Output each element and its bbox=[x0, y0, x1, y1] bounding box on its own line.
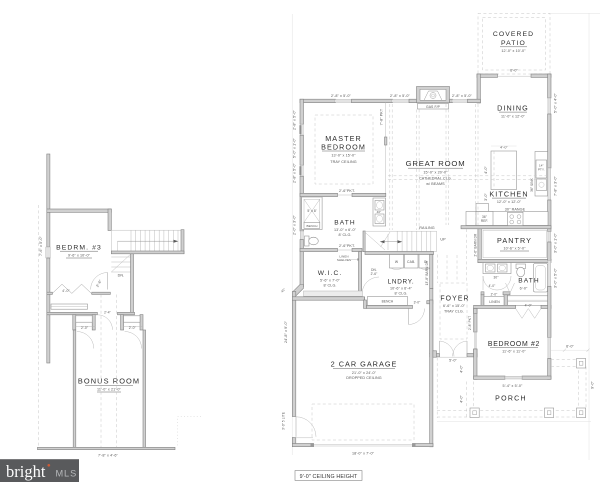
svg-text:GREAT ROOM: GREAT ROOM bbox=[406, 159, 466, 168]
svg-text:KITCHEN: KITCHEN bbox=[489, 189, 528, 198]
svg-text:4'-0": 4'-0" bbox=[489, 284, 496, 288]
svg-text:13'-0" x 15'-0": 13'-0" x 15'-0" bbox=[331, 154, 356, 158]
svg-text:2'-8" x 5'-0": 2'-8" x 5'-0" bbox=[293, 109, 297, 129]
svg-text:3'-0" 5 LITE: 3'-0" 5 LITE bbox=[282, 412, 286, 430]
svg-text:11'-0" x 21'-0": 11'-0" x 21'-0" bbox=[97, 388, 121, 392]
svg-text:4'-0": 4'-0" bbox=[460, 394, 464, 402]
svg-text:30": 30" bbox=[494, 276, 499, 280]
svg-text:13'-0" x 6'-0": 13'-0" x 6'-0" bbox=[334, 228, 357, 232]
svg-text:bright: bright bbox=[6, 462, 46, 481]
svg-text:11'-0" x 12'-0": 11'-0" x 12'-0" bbox=[501, 115, 525, 119]
svg-text:12'-0" x 12'-0": 12'-0" x 12'-0" bbox=[497, 200, 522, 204]
svg-text:7'-6" x 5'-0": 7'-6" x 5'-0" bbox=[39, 235, 43, 255]
svg-text:COVERED: COVERED bbox=[493, 31, 534, 38]
svg-text:12'-0" x 10'-0": 12'-0" x 10'-0" bbox=[501, 49, 526, 53]
svg-text:2'-8" x 5'-0": 2'-8" x 5'-0" bbox=[293, 162, 297, 182]
svg-text:BATH: BATH bbox=[518, 277, 540, 284]
svg-text:8' CLG.: 8' CLG. bbox=[338, 233, 351, 237]
svg-text:3'-0": 3'-0" bbox=[414, 301, 421, 305]
svg-text:3'-0" x 1'-0": 3'-0" x 1'-0" bbox=[554, 232, 558, 252]
svg-text:FOYER: FOYER bbox=[440, 295, 469, 302]
svg-text:5'-4" x 5'-0": 5'-4" x 5'-0" bbox=[503, 384, 523, 388]
svg-text:9'-6" x 10'-0": 9'-6" x 10'-0" bbox=[68, 254, 91, 258]
svg-text:2'-0" x 3'-0": 2'-0" x 3'-0" bbox=[293, 214, 297, 234]
svg-text:CAB.: CAB. bbox=[407, 260, 415, 264]
svg-text:18'-0" x 7'-0": 18'-0" x 7'-0" bbox=[352, 452, 375, 456]
svg-text:9'-0" CEILING HEIGHT: 9'-0" CEILING HEIGHT bbox=[300, 474, 358, 480]
svg-text:TRAY CEILING: TRAY CEILING bbox=[330, 160, 357, 164]
svg-text:DINING: DINING bbox=[497, 103, 529, 112]
svg-text:5'-0" x 1'-0": 5'-0" x 1'-0" bbox=[293, 137, 297, 157]
svg-text:2'-6"PKT.: 2'-6"PKT. bbox=[339, 244, 355, 248]
svg-text:3'-0" x 5'-0": 3'-0" x 5'-0" bbox=[554, 267, 558, 287]
svg-text:13'-8" BARN DR: 13'-8" BARN DR bbox=[425, 260, 429, 285]
svg-text:LNDRY.: LNDRY. bbox=[388, 278, 415, 285]
svg-text:W.I.C.: W.I.C. bbox=[318, 270, 343, 277]
svg-text:BEDROOM #2: BEDROOM #2 bbox=[488, 341, 540, 348]
svg-text:2'-0": 2'-0" bbox=[491, 292, 498, 296]
svg-text:CATHEDRAL CLG.: CATHEDRAL CLG. bbox=[419, 176, 452, 180]
svg-text:4'-0": 4'-0" bbox=[62, 289, 70, 293]
svg-text:5' x 8': 5' x 8' bbox=[307, 209, 317, 213]
svg-text:PORCH: PORCH bbox=[495, 395, 527, 402]
svg-text:BENCH: BENCH bbox=[382, 300, 394, 304]
svg-text:BENCH: BENCH bbox=[306, 224, 317, 228]
svg-text:7'-8" PKT: 7'-8" PKT bbox=[380, 108, 384, 125]
svg-text:5'-0": 5'-0" bbox=[449, 358, 457, 362]
svg-text:6'-0": 6'-0" bbox=[520, 287, 528, 291]
svg-text:PANTRY: PANTRY bbox=[497, 236, 532, 245]
svg-text:8' CLG.: 8' CLG. bbox=[394, 292, 407, 296]
svg-text:2'-8" x 5'-0": 2'-8" x 5'-0" bbox=[390, 94, 410, 98]
svg-text:40": 40" bbox=[377, 210, 382, 214]
svg-text:2'-8" PKT: 2'-8" PKT bbox=[468, 316, 472, 330]
svg-text:DROPPED CEILING: DROPPED CEILING bbox=[346, 376, 382, 380]
svg-text:DN.: DN. bbox=[118, 274, 125, 278]
svg-text:4'-0": 4'-0" bbox=[525, 304, 533, 308]
svg-text:4'-0": 4'-0" bbox=[460, 364, 464, 372]
svg-text:2'-4": 2'-4" bbox=[104, 311, 111, 315]
svg-text:10'-6" x 5'-0": 10'-6" x 5'-0" bbox=[503, 247, 526, 251]
svg-text:7'-8" x 3'-0": 7'-8" x 3'-0" bbox=[554, 175, 558, 195]
svg-text:2'-6": 2'-6" bbox=[371, 272, 378, 276]
svg-text:2'-0": 2'-0" bbox=[129, 326, 137, 330]
svg-text:TRAY CLG.: TRAY CLG. bbox=[444, 310, 464, 314]
svg-text:SHELVES: SHELVES bbox=[337, 258, 351, 262]
svg-text:7'-8" x 4'-6": 7'-8" x 4'-6" bbox=[98, 454, 118, 458]
svg-text:PTY.: PTY. bbox=[538, 168, 545, 172]
svg-text:2 CAR GARAGE: 2 CAR GARAGE bbox=[331, 360, 398, 369]
svg-text:BEDRM. #3: BEDRM. #3 bbox=[56, 245, 102, 252]
svg-text:21'-0" x 24'-0": 21'-0" x 24'-0" bbox=[352, 371, 377, 375]
svg-text:4'-0": 4'-0" bbox=[484, 165, 488, 173]
svg-text:30" RANGE: 30" RANGE bbox=[505, 208, 526, 212]
svg-text:w/ BEAMS: w/ BEAMS bbox=[426, 182, 445, 186]
svg-text:PATIO: PATIO bbox=[501, 40, 526, 47]
svg-text:2'-6" BARN DR: 2'-6" BARN DR bbox=[473, 233, 477, 256]
svg-text:BATH: BATH bbox=[334, 219, 356, 226]
svg-text:REF.: REF. bbox=[481, 219, 488, 223]
svg-text:BONUS ROOM: BONUS ROOM bbox=[78, 377, 140, 386]
svg-text:2'-6"PKT.: 2'-6"PKT. bbox=[339, 189, 355, 193]
svg-text:24'-8" x 9'-0": 24'-8" x 9'-0" bbox=[284, 320, 288, 343]
svg-text:6'-6" x 15'-0": 6'-6" x 15'-0" bbox=[443, 304, 466, 308]
svg-text:UP: UP bbox=[440, 238, 446, 242]
svg-text:2'-8" x 5'-0": 2'-8" x 5'-0" bbox=[452, 94, 472, 98]
svg-text:11'-6" x 11'-0": 11'-6" x 11'-0" bbox=[502, 350, 526, 354]
svg-text:6'-0": 6'-0" bbox=[510, 69, 518, 73]
svg-text:BEDROOM: BEDROOM bbox=[321, 142, 366, 151]
svg-text:RAILING: RAILING bbox=[419, 226, 434, 230]
svg-text:2'-0": 2'-0" bbox=[81, 326, 89, 330]
svg-text:3'-0": 3'-0" bbox=[484, 192, 488, 200]
svg-text:MLS: MLS bbox=[56, 469, 78, 479]
svg-text:15'-0" x 20'-0": 15'-0" x 20'-0" bbox=[423, 171, 448, 175]
svg-text:LINEN: LINEN bbox=[489, 300, 500, 304]
svg-text:2'-8" x 5'-0": 2'-8" x 5'-0" bbox=[331, 94, 351, 98]
svg-text:6'-0": 6'-0" bbox=[566, 344, 574, 348]
svg-text:8' CLG.: 8' CLG. bbox=[323, 284, 336, 288]
svg-text:5'-0" x 4'-0": 5'-0" x 4'-0" bbox=[554, 92, 558, 112]
svg-text:5'-6" x 7'-0": 5'-6" x 7'-0" bbox=[320, 278, 340, 282]
svg-text:9'-0": 9'-0" bbox=[591, 380, 595, 388]
svg-text:10'-6" x 6'-4": 10'-6" x 6'-4" bbox=[390, 287, 413, 291]
svg-text:GAS F/P: GAS F/P bbox=[426, 105, 441, 109]
